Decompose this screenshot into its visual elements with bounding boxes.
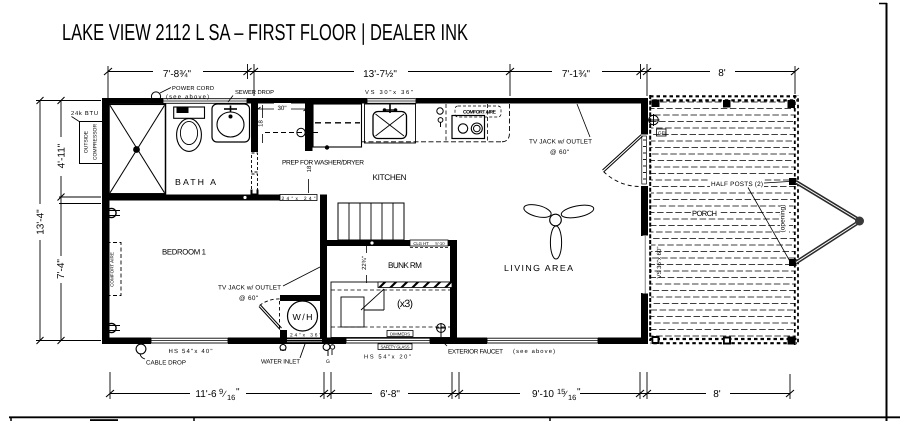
svg-text:G: G xyxy=(326,359,330,365)
svg-text:@ 60": @ 60" xyxy=(239,295,258,302)
svg-text:SEWER DROP: SEWER DROP xyxy=(235,89,274,96)
svg-text:CLG HT: CLG HT xyxy=(413,241,429,246)
svg-text:BEDROOM 1: BEDROOM 1 xyxy=(162,248,206,257)
svg-text:VS 30"x 36": VS 30"x 36" xyxy=(365,89,413,96)
svg-text:PREP FOR WASHER/DRYER: PREP FOR WASHER/DRYER xyxy=(282,160,364,167)
svg-text:7'-4": 7'-4" xyxy=(56,259,67,279)
svg-text:(x3): (x3) xyxy=(397,298,413,310)
svg-text:22¾": 22¾" xyxy=(361,256,368,270)
svg-text:BUNK RM: BUNK RM xyxy=(388,261,422,270)
svg-text:TV JACK w/ OUTLET: TV JACK w/ OUTLET xyxy=(218,285,281,292)
svg-text:30": 30" xyxy=(277,105,286,112)
svg-text:VS 36"x 60": VS 36"x 60" xyxy=(656,247,663,279)
svg-text:7'-1¾": 7'-1¾" xyxy=(562,69,591,80)
svg-text:TV JACK w/ OUTLET: TV JACK w/ OUTLET xyxy=(529,139,592,146)
svg-text:KITCHEN: KITCHEN xyxy=(373,173,407,182)
svg-text:OUTSIDE: OUTSIDE xyxy=(84,130,90,153)
svg-text:LAKE VIEW 2112 L SA – FIRST FL: LAKE VIEW 2112 L SA – FIRST FLOOR | DEAL… xyxy=(62,19,468,45)
svg-text:7'-8¾": 7'-8¾" xyxy=(163,69,192,80)
svg-text:PORCH: PORCH xyxy=(692,209,717,218)
svg-text:": " xyxy=(577,387,581,398)
svg-text:W/H: W/H xyxy=(293,312,313,322)
svg-text:(see above): (see above) xyxy=(166,94,209,101)
svg-text:5'-10: 5'-10 xyxy=(435,241,445,246)
svg-text:18: 18 xyxy=(258,120,265,127)
svg-text:8': 8' xyxy=(718,68,726,79)
svg-text:24k BTU: 24k BTU xyxy=(71,110,98,117)
svg-text:HS 54"x 20": HS 54"x 20" xyxy=(364,354,411,361)
svg-text:18: 18 xyxy=(306,165,313,172)
svg-text:HALF POSTS (2): HALF POSTS (2) xyxy=(711,181,763,188)
svg-text:6'-8": 6'-8" xyxy=(380,389,400,400)
svg-text:DIMMERS: DIMMERS xyxy=(390,332,410,337)
svg-text:COMPRESSOR: COMPRESSOR xyxy=(93,124,99,161)
svg-text:(opening): (opening) xyxy=(780,205,787,233)
svg-text:9'-10: 9'-10 xyxy=(532,389,554,400)
svg-text:": " xyxy=(236,387,240,398)
svg-text:13'-7½": 13'-7½" xyxy=(363,69,397,80)
svg-text:@ 60": @ 60" xyxy=(550,149,569,156)
svg-text:LIVING AREA: LIVING AREA xyxy=(504,263,573,273)
svg-text:8': 8' xyxy=(713,389,721,400)
svg-text:HS 54"x 40": HS 54"x 40" xyxy=(169,348,213,355)
svg-text:POWER CORD: POWER CORD xyxy=(172,85,214,92)
svg-text:SAFETY GLASS: SAFETY GLASS xyxy=(381,344,410,349)
svg-text:(see above): (see above) xyxy=(513,348,555,355)
svg-text:GFI: GFI xyxy=(658,131,666,136)
svg-text:EXTERIOR FAUCET: EXTERIOR FAUCET xyxy=(448,349,503,356)
svg-text:CABLE DROP: CABLE DROP xyxy=(146,360,186,367)
svg-text:16: 16 xyxy=(568,393,576,402)
svg-text:9: 9 xyxy=(219,387,223,396)
svg-text:11'-6: 11'-6 xyxy=(195,389,217,400)
svg-text:COMFORT AIRE: COMFORT AIRE xyxy=(110,252,115,287)
svg-text:16: 16 xyxy=(227,393,235,402)
svg-text:13'-4": 13'-4" xyxy=(36,209,47,235)
svg-text:4'-11": 4'-11" xyxy=(57,143,68,168)
svg-text:COMFORT AIRE: COMFORT AIRE xyxy=(463,110,497,116)
svg-text:WATER INLET: WATER INLET xyxy=(261,359,300,366)
